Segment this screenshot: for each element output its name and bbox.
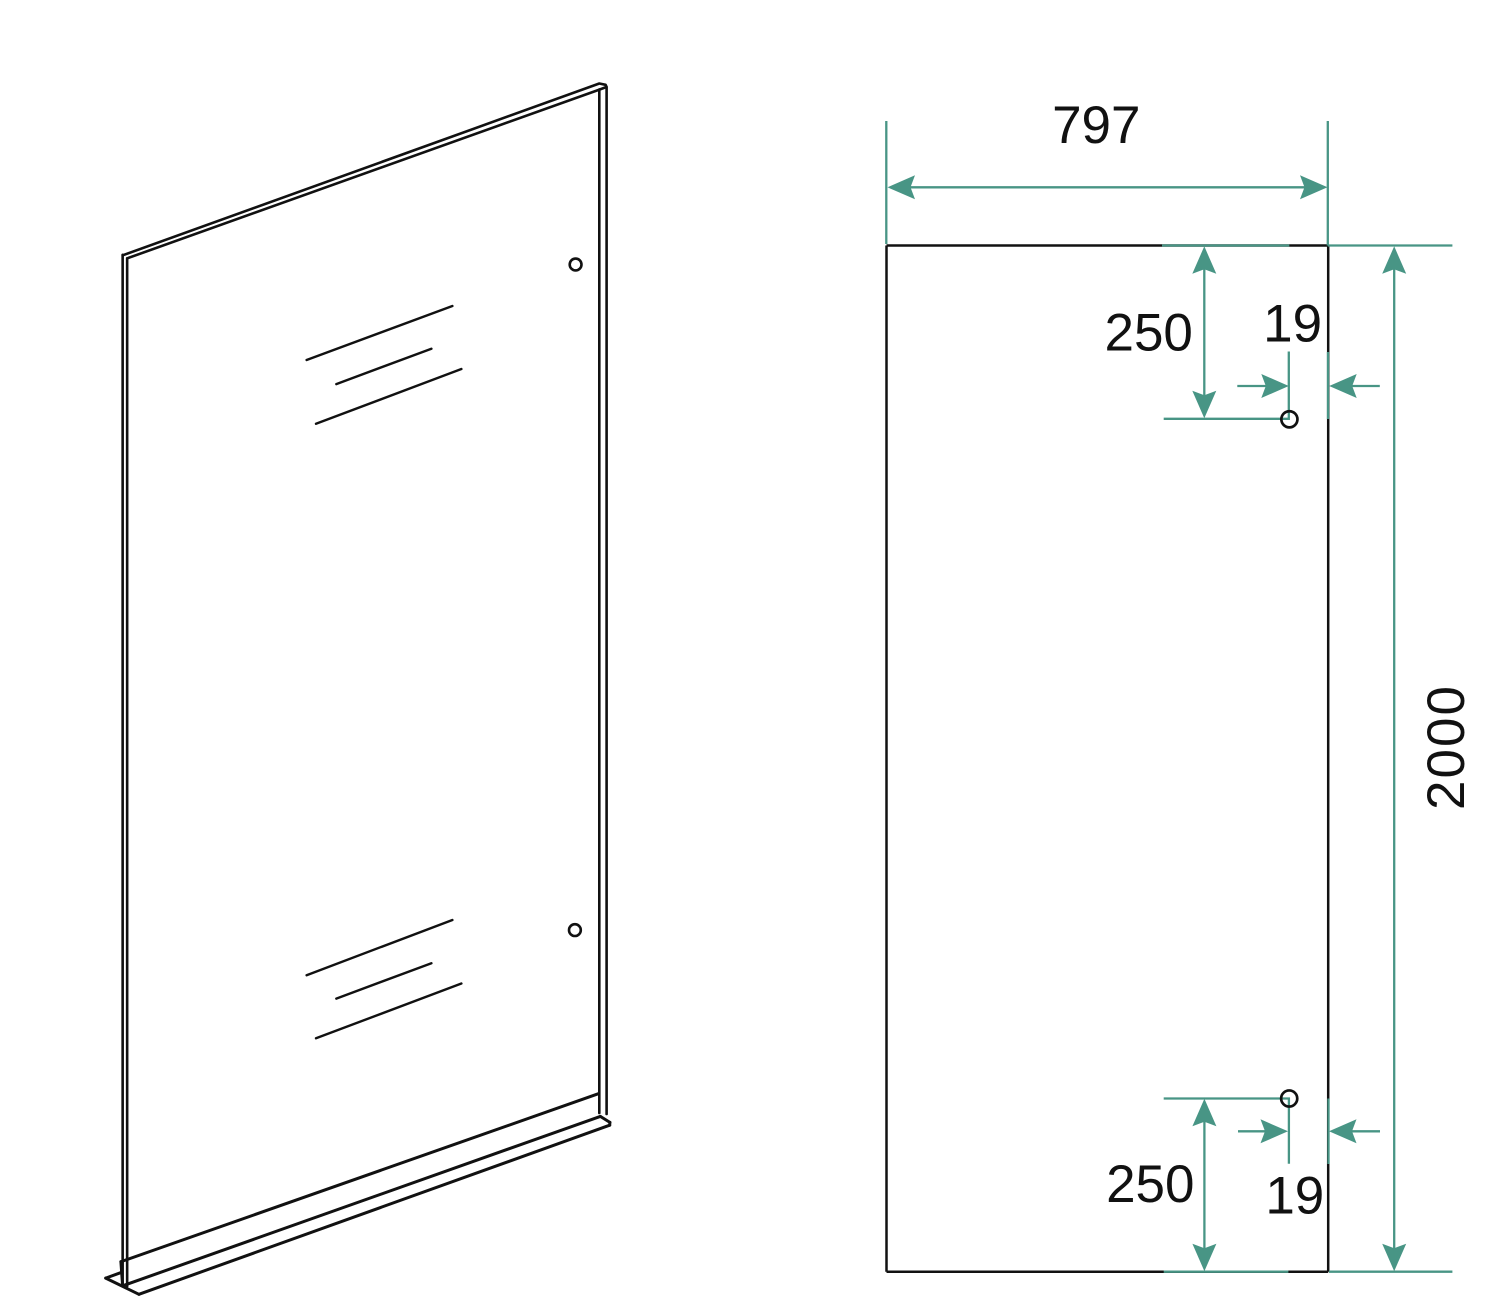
- svg-text:797: 797: [1052, 96, 1140, 155]
- svg-text:19: 19: [1263, 295, 1322, 354]
- svg-text:19: 19: [1265, 1166, 1324, 1225]
- svg-text:2000: 2000: [1417, 684, 1476, 810]
- svg-text:250: 250: [1104, 303, 1192, 362]
- svg-text:250: 250: [1106, 1155, 1194, 1214]
